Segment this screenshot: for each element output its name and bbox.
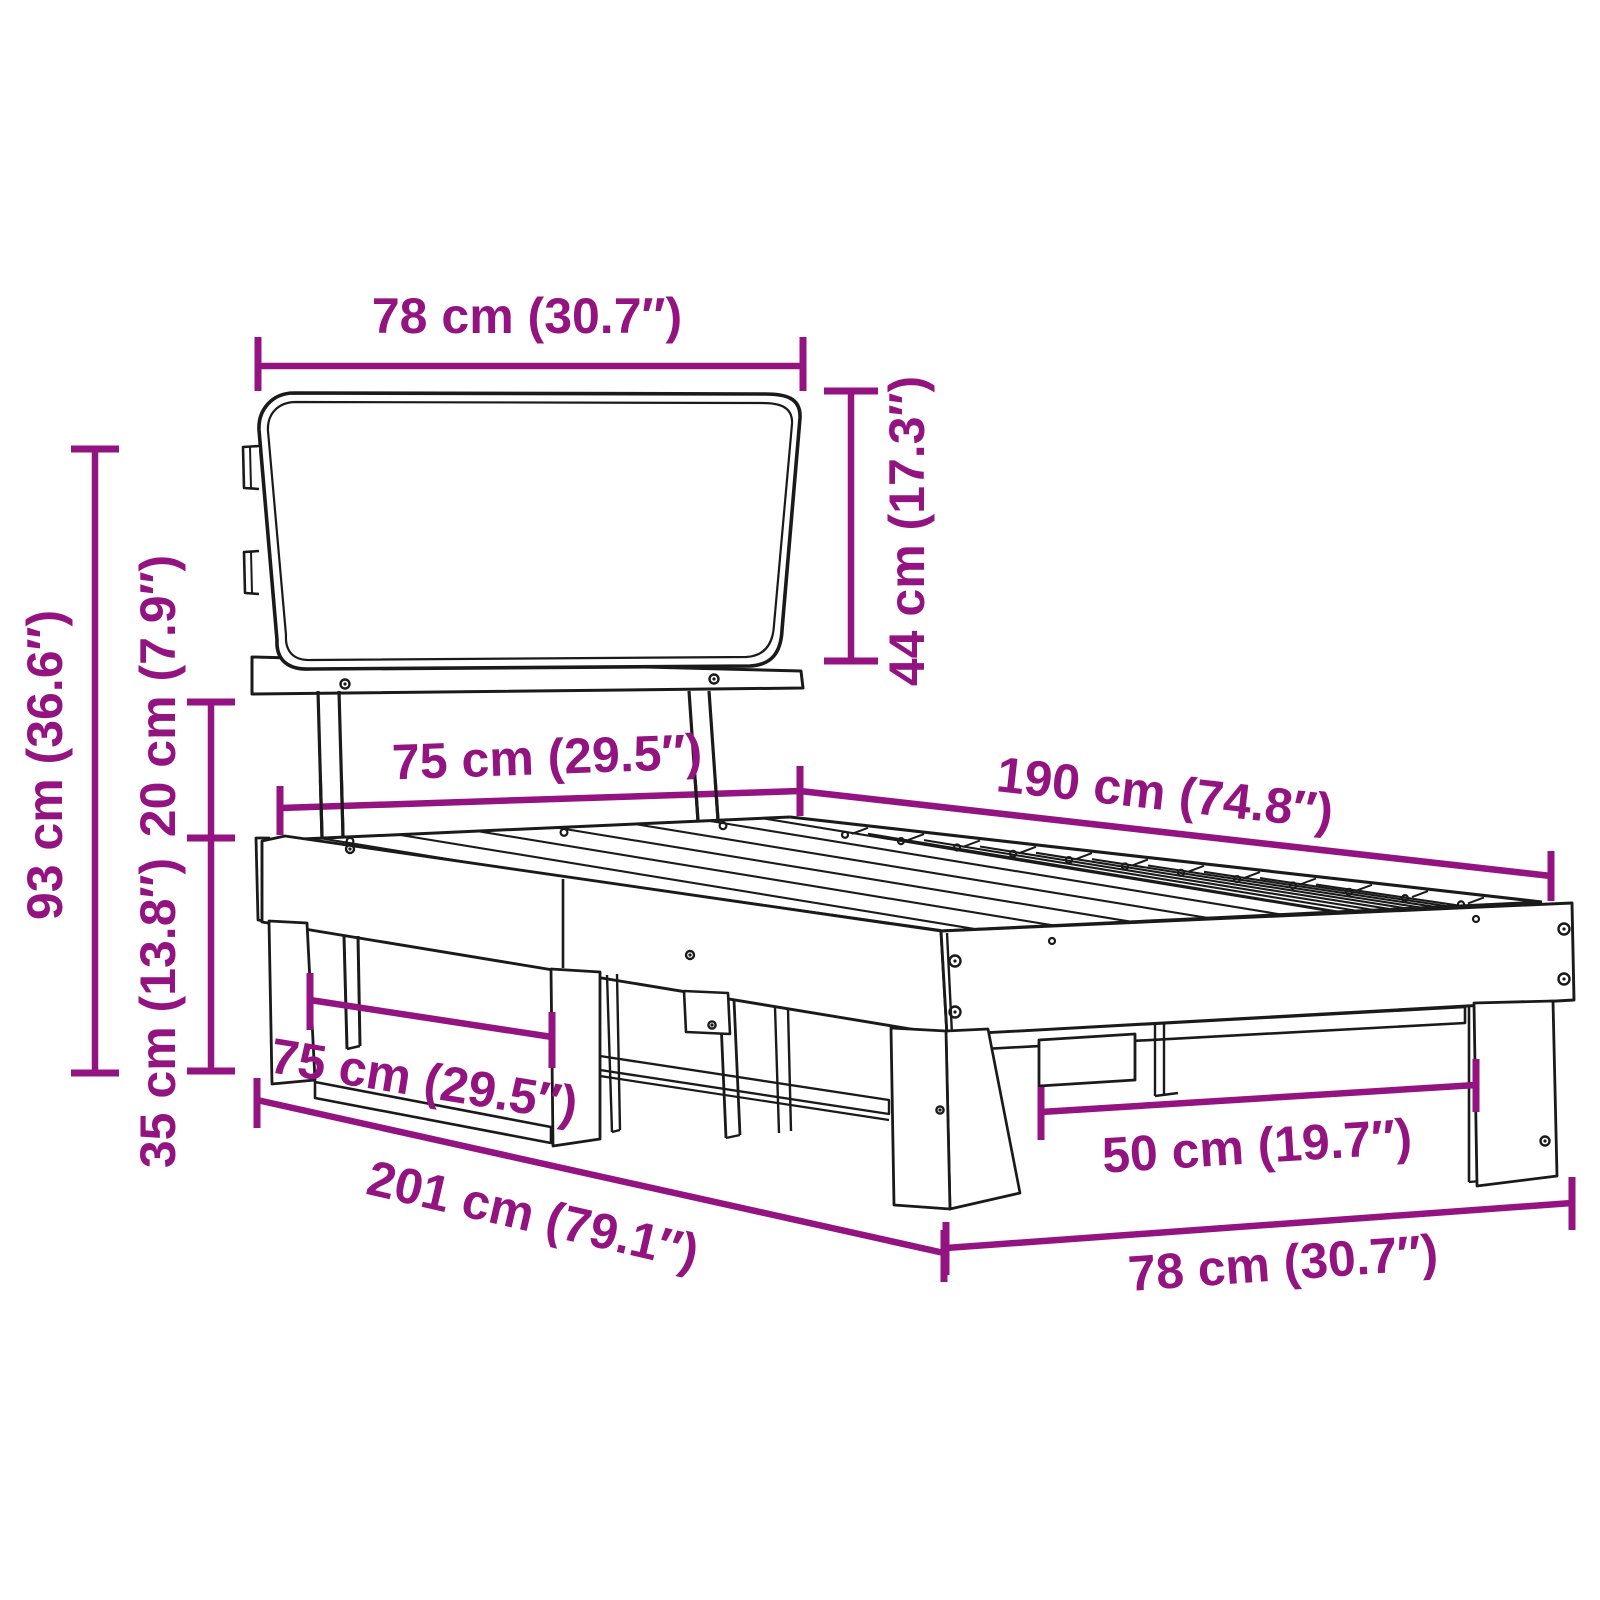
svg-text:44 cm (17.3″): 44 cm (17.3″) (879, 376, 935, 686)
svg-text:35 cm (13.8″): 35 cm (13.8″) (130, 858, 186, 1168)
svg-text:75 cm (29.5″): 75 cm (29.5″) (391, 724, 703, 791)
svg-text:93 cm (36.6″): 93 cm (36.6″) (17, 610, 73, 920)
svg-text:20 cm (7.9″): 20 cm (7.9″) (130, 555, 186, 837)
svg-text:78 cm (30.7″): 78 cm (30.7″) (372, 288, 682, 344)
